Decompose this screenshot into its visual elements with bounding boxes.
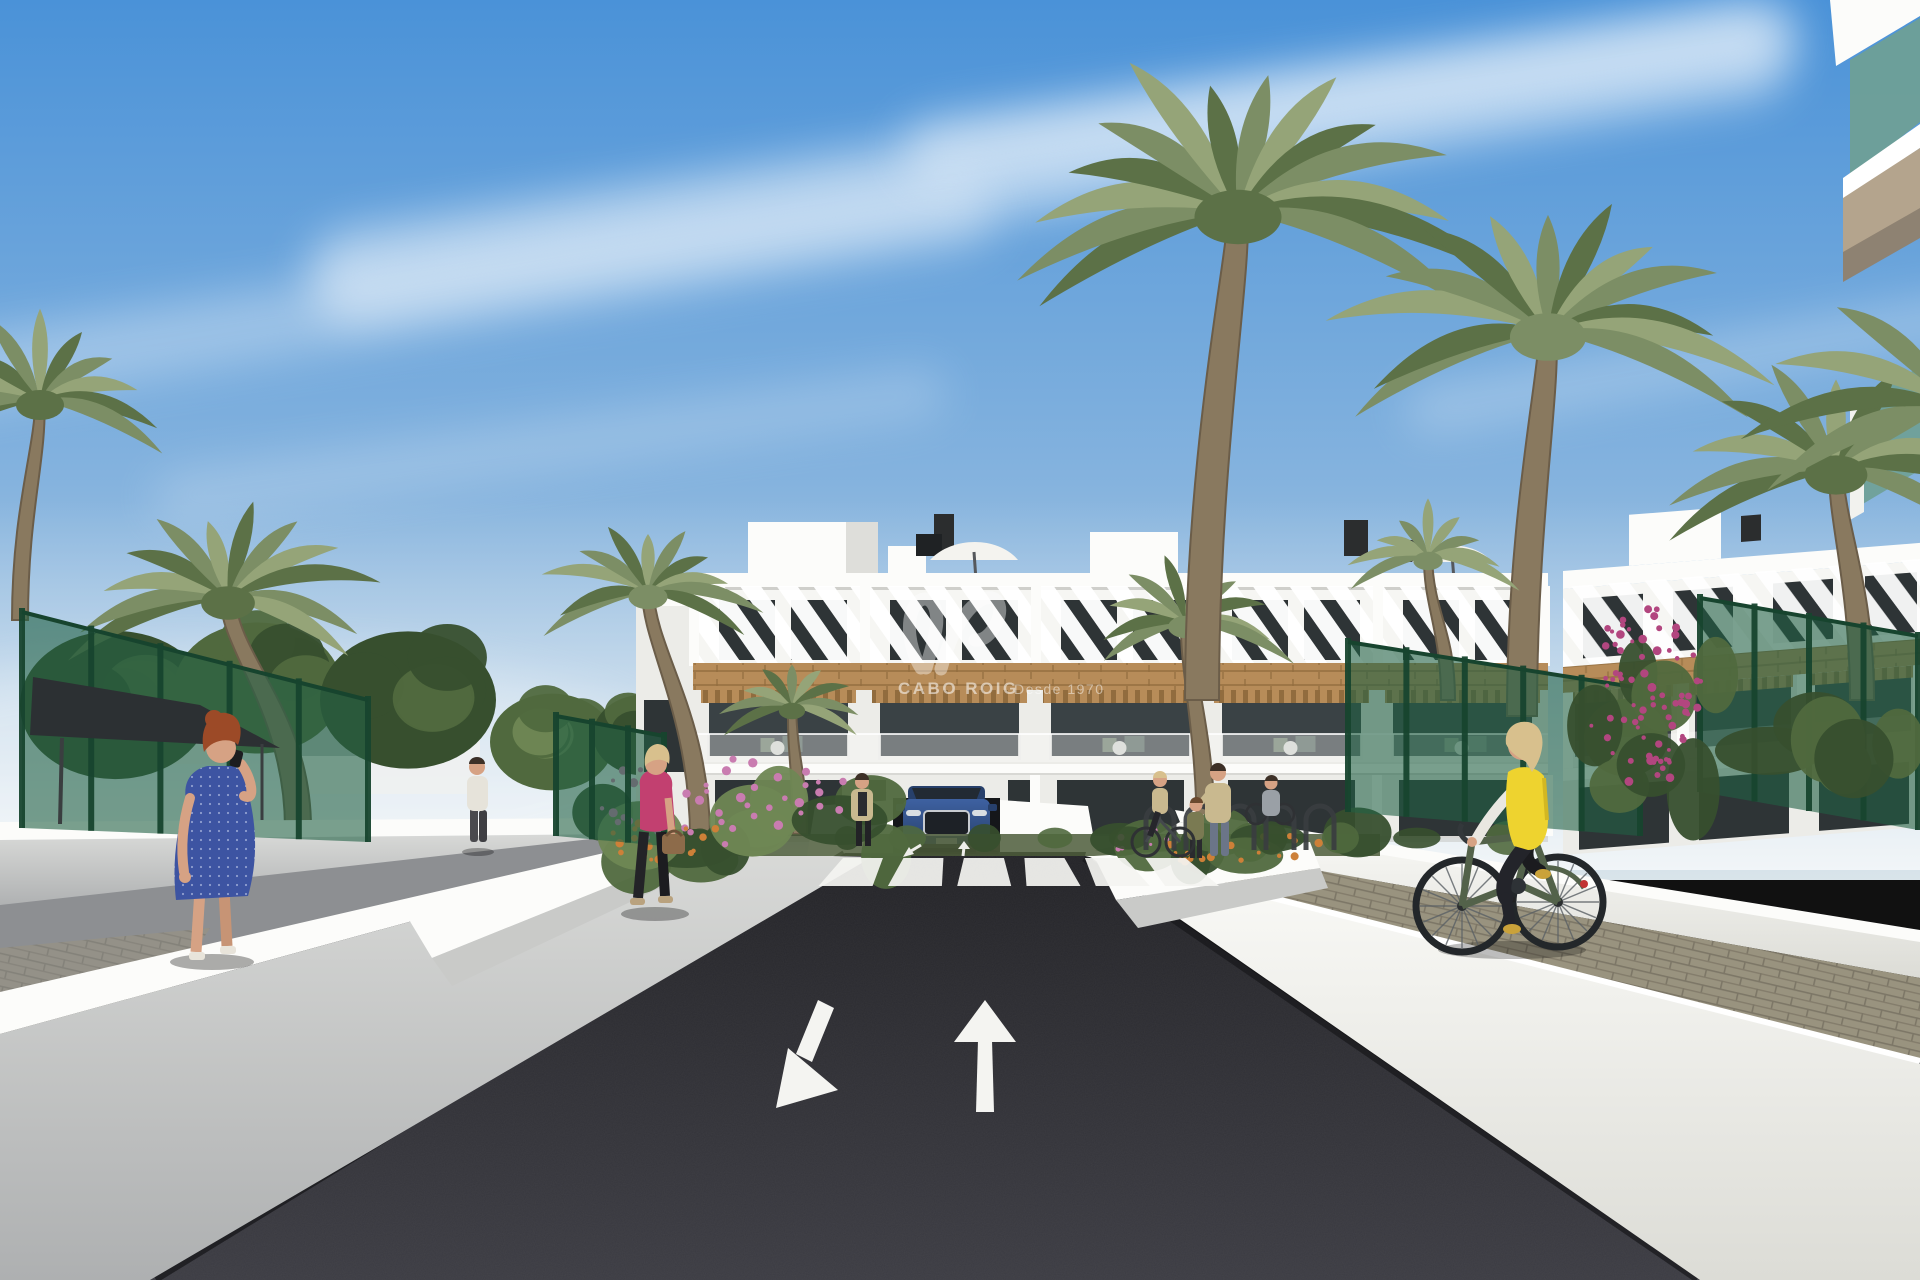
bike-tail-light [1580,880,1588,888]
handbag [662,834,685,854]
brand-name: CABO ROIG [898,679,1019,698]
roof-chimney [1344,520,1368,556]
hi-vis-vest [1506,767,1548,850]
car-headlight [906,810,921,816]
brand-tagline: Desde 1970 [1014,681,1105,697]
architectural-render: CABO ROIG Desde 1970 [0,0,1920,1280]
car-grille [924,811,969,835]
car-headlight [972,810,987,816]
